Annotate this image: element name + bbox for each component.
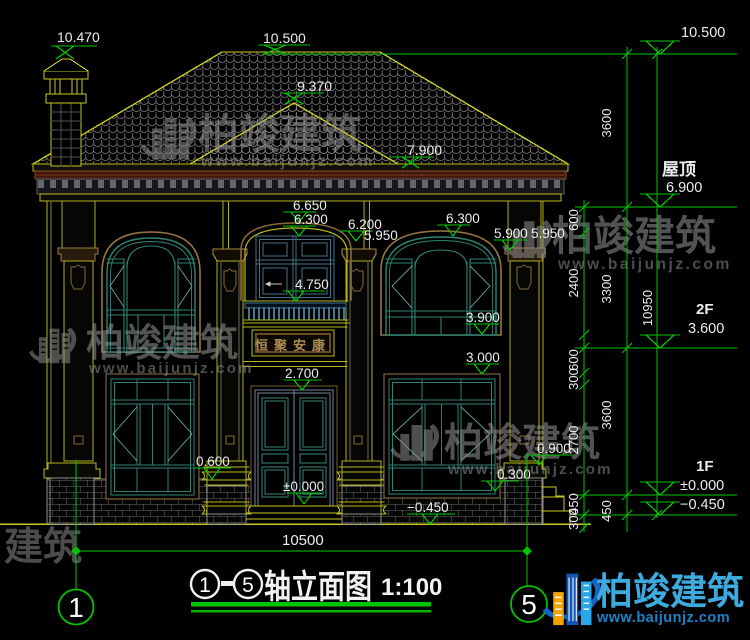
svg-text:柏竣建筑: 柏竣建筑	[198, 111, 362, 157]
svg-text:恒聚安康: 恒聚安康	[255, 338, 331, 353]
svg-text:600: 600	[566, 349, 581, 371]
svg-text:±0.000: ±0.000	[283, 479, 324, 494]
svg-text:9.370: 9.370	[297, 78, 332, 94]
svg-text:3300: 3300	[599, 275, 614, 304]
svg-text:3.900: 3.900	[466, 310, 500, 325]
svg-text:www.baijunjz.com: www.baijunjz.com	[88, 360, 254, 377]
svg-text:2F: 2F	[696, 301, 714, 318]
svg-text:轴立面图: 轴立面图	[264, 568, 372, 605]
svg-text:10950: 10950	[640, 290, 655, 326]
svg-text:5.950: 5.950	[531, 226, 565, 241]
svg-text:300: 300	[566, 508, 581, 530]
svg-text:3600: 3600	[599, 401, 614, 430]
svg-text:10.470: 10.470	[57, 29, 100, 45]
svg-text:5.900: 5.900	[494, 226, 528, 241]
svg-text:10.500: 10.500	[681, 25, 725, 41]
svg-text:3600: 3600	[599, 109, 614, 138]
svg-text:0.300: 0.300	[497, 467, 531, 482]
svg-text:±0.000: ±0.000	[680, 478, 724, 494]
svg-text:2400: 2400	[566, 269, 581, 298]
svg-text:6.300: 6.300	[446, 211, 480, 226]
svg-text:0.600: 0.600	[196, 454, 230, 469]
svg-text:柏竣建筑: 柏竣建筑	[596, 570, 744, 612]
svg-text:6.300: 6.300	[294, 212, 328, 227]
svg-text:www.baijunjz.com: www.baijunjz.com	[596, 610, 730, 626]
svg-text:5: 5	[242, 574, 254, 597]
svg-text:3.600: 3.600	[688, 321, 724, 337]
svg-text:www.baijunjz.com: www.baijunjz.com	[200, 153, 375, 170]
svg-text:www.baijunjz.com: www.baijunjz.com	[557, 256, 732, 273]
svg-text:10500: 10500	[282, 532, 324, 549]
svg-text:7.900: 7.900	[407, 142, 442, 158]
svg-text:2.700: 2.700	[285, 366, 319, 381]
svg-text:1:100: 1:100	[381, 574, 442, 601]
svg-text:600: 600	[566, 209, 581, 231]
svg-text:1F: 1F	[696, 458, 714, 475]
svg-text:−0.450: −0.450	[407, 500, 449, 515]
svg-text:1: 1	[68, 592, 84, 623]
svg-text:屋顶: 屋顶	[662, 160, 696, 179]
svg-text:1: 1	[199, 574, 211, 597]
svg-text:−0.450: −0.450	[680, 497, 725, 513]
svg-text:建筑: 建筑	[4, 526, 82, 569]
svg-text:4.750: 4.750	[295, 277, 329, 292]
svg-text:10.500: 10.500	[263, 30, 306, 46]
svg-text:5.950: 5.950	[364, 228, 398, 243]
svg-text:5: 5	[521, 589, 537, 620]
svg-text:2700: 2700	[566, 426, 581, 455]
svg-text:3.000: 3.000	[466, 350, 500, 365]
svg-text:柏竣建筑: 柏竣建筑	[86, 323, 238, 365]
svg-text:450: 450	[599, 500, 614, 522]
svg-text:6.900: 6.900	[666, 180, 702, 196]
svg-text:300: 300	[566, 368, 581, 390]
svg-text:6.650: 6.650	[293, 198, 327, 213]
